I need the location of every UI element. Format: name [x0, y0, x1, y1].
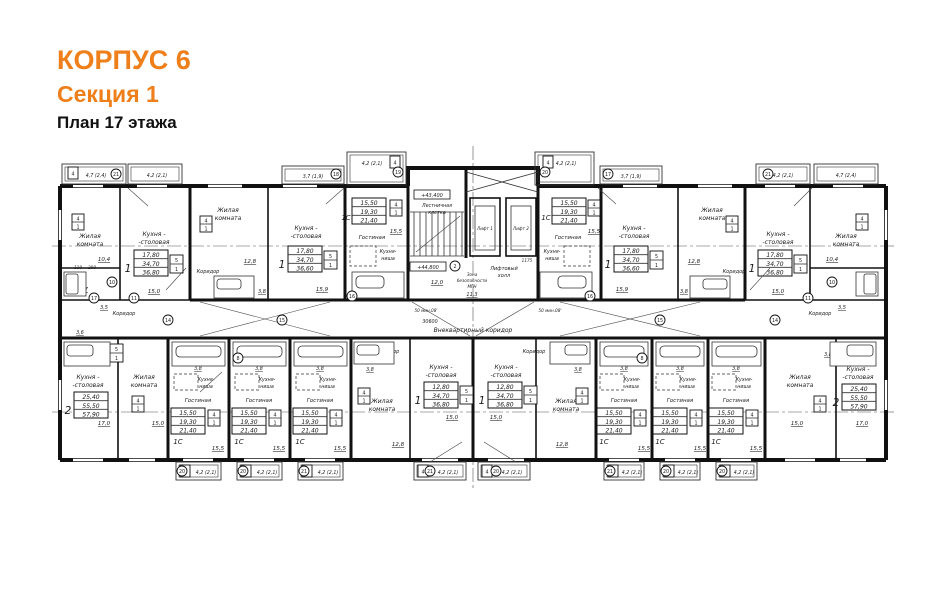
svg-text:4: 4 [750, 413, 753, 419]
room-label: Кухня - [767, 231, 790, 238]
svg-text:21: 21 [427, 469, 433, 475]
room-label: Гостиная [359, 235, 386, 241]
apt-table-value: 15,50 [560, 200, 577, 207]
svg-text:10: 10 [829, 280, 835, 286]
svg-text:4: 4 [212, 413, 215, 419]
svg-text:1: 1 [334, 421, 337, 427]
elevator-1-label: Лифт 1 [476, 226, 493, 231]
room-area: 3,8 [258, 289, 266, 295]
svg-text:4: 4 [76, 217, 79, 223]
apt-table-value: 55,50 [850, 395, 867, 402]
room-label: Кухня- [320, 377, 337, 383]
room-label: -столовая [73, 382, 104, 389]
room-area: 15,5 [638, 446, 651, 452]
svg-text:4: 4 [730, 219, 733, 225]
apt-table-value: 17,80 [622, 248, 639, 255]
svg-text:20: 20 [542, 170, 548, 176]
apt-table-value: 21,40 [661, 428, 678, 435]
room-label: Кухня- [624, 377, 641, 383]
room-area: 15,0 [791, 421, 804, 427]
svg-text:1: 1 [204, 227, 207, 233]
svg-text:1: 1 [694, 421, 697, 427]
room-area: 3,8 [194, 366, 202, 372]
dim-label: 1175 [522, 258, 533, 263]
svg-text:4: 4 [136, 399, 139, 405]
room-area: 12,8 [556, 442, 569, 448]
balcony-area-label: 4,2 (2,1) [257, 470, 278, 476]
svg-text:21: 21 [113, 172, 119, 178]
room-area: 15,0 [148, 289, 161, 295]
room-label: Жилая [834, 233, 857, 240]
svg-text:15: 15 [657, 318, 663, 324]
elevation-mark: +43,400 [421, 193, 443, 199]
room-area: 3,8 [255, 366, 263, 372]
apt-table-value: 15,50 [240, 410, 257, 417]
apartment-studio-b6: 3,8 Кухня- ниша Гостиная 15,50 19,30 21,… [709, 366, 763, 452]
svg-text:11: 11 [805, 296, 811, 302]
apt-table-value: 15,50 [661, 410, 678, 417]
room-area: 15,9 [316, 287, 329, 293]
apt-table-value: 36,60 [622, 266, 639, 273]
svg-text:4: 4 [204, 219, 207, 225]
apt-table-value: 15,50 [179, 410, 196, 417]
safety-zone-label: Зона [467, 272, 478, 277]
room-area: 3,8 [574, 367, 582, 373]
room-label: Кухня - [295, 225, 318, 232]
room-area: 10,4 [98, 257, 111, 263]
room-label: комната [131, 382, 158, 389]
svg-text:5: 5 [799, 258, 802, 264]
svg-text:1: 1 [175, 267, 178, 273]
apt-table-value: 17,80 [766, 252, 783, 259]
drawing-sheet: КОРПУС 6 Секция 1 План 17 этажа [0, 0, 941, 600]
svg-text:4: 4 [334, 413, 337, 419]
room-label: Кухня - [495, 364, 518, 371]
stairs [410, 212, 464, 256]
balcony-area-label: 4,2 (2,1) [773, 173, 794, 179]
room-label: -столовая [619, 233, 650, 240]
room-label: Коридор [197, 269, 220, 275]
room-label: комната [553, 406, 580, 413]
svg-text:11: 11 [131, 296, 137, 302]
room-label: Кухня- [544, 249, 561, 255]
balcony-area-label: 3,7 (1,9) [621, 174, 642, 180]
room-label: Жилая [132, 374, 155, 381]
svg-text:8: 8 [236, 356, 239, 362]
apartment-1room-corner-tl: Жилая комната 10,4 4 1 110 200 Кухня - -… [72, 214, 183, 317]
room-label: Жилая [554, 398, 577, 405]
svg-text:4: 4 [394, 203, 397, 209]
apartment-studio-b5: 3,8 Кухня- ниша Гостиная 15,50 19,30 21,… [653, 366, 707, 452]
apt-number: 1 [749, 263, 756, 275]
svg-text:1: 1 [799, 267, 802, 273]
stair-area: 12,0 [431, 280, 444, 286]
svg-text:8: 8 [640, 356, 643, 362]
svg-text:5: 5 [175, 258, 178, 264]
apt-number: 1 [125, 263, 132, 275]
room-label: Кухня - [847, 366, 870, 373]
room-label: ниша [737, 385, 751, 390]
apartment-studio-b3: 3,8 Кухня- ниша Гостиная 15,50 19,30 21,… [293, 366, 347, 452]
apartment-studio-b4: 3,8 Кухня- ниша Гостиная 15,50 19,30 21,… [597, 366, 651, 452]
dim-label: 110 [74, 265, 82, 270]
room-area: 15,5 [273, 446, 286, 452]
apt-table-value: 21,40 [301, 428, 318, 435]
room-label: -столовая [291, 233, 322, 240]
balcony-area-label: 4,2 (2,1) [556, 161, 577, 167]
room-label: комната [787, 382, 814, 389]
room-label: Жилая [700, 207, 723, 214]
room-label: ниша [625, 385, 639, 390]
room-area: 3,5 [100, 305, 108, 311]
room-area: 15,5 [212, 446, 225, 452]
room-label: Коридор [113, 311, 136, 317]
room-label: Кухня- [198, 377, 215, 383]
elevators [466, 172, 538, 256]
apt-table-value: 19,30 [360, 209, 377, 216]
apartment-studio-b1: 3,8 Кухня- ниша Гостиная 15,50 19,30 21,… [171, 366, 225, 452]
elevator-2-label: Лифт 2 [512, 226, 529, 231]
room-label: Гостиная [185, 398, 212, 404]
svg-text:2: 2 [453, 264, 456, 270]
svg-text:10: 10 [109, 280, 115, 286]
balcony-area-label: 4,2 (2,1) [502, 470, 523, 476]
svg-text:4: 4 [638, 413, 641, 419]
apt-table-value: 55,50 [82, 403, 99, 410]
room-area: 3,8 [732, 366, 740, 372]
svg-text:1: 1 [860, 225, 863, 231]
balcony-area-label: 4,2 (2,1) [678, 470, 699, 476]
room-label: Кухня - [623, 225, 646, 232]
apt-number: 1С [295, 438, 304, 446]
room-area: 3,8 [620, 366, 628, 372]
elevation-mark: +44,800 [417, 265, 439, 271]
apt-table-value: 12,80 [496, 384, 513, 391]
svg-text:4: 4 [273, 413, 276, 419]
apt-number: 1 [605, 259, 612, 271]
svg-text:21: 21 [607, 469, 613, 475]
svg-text:4: 4 [592, 203, 595, 209]
room-label: комната [77, 241, 104, 248]
apt-table-value: 57,90 [850, 404, 867, 411]
apt-table-value: 15,50 [717, 410, 734, 417]
room-area: 15,0 [772, 289, 785, 295]
svg-text:4: 4 [580, 391, 583, 397]
svg-text:4: 4 [393, 161, 396, 167]
svg-text:1: 1 [655, 263, 658, 269]
room-area: 15,9 [616, 287, 629, 293]
room-label: Гостиная [723, 398, 750, 404]
apt-number: 1 [279, 259, 286, 271]
svg-text:1: 1 [212, 421, 215, 427]
svg-text:4: 4 [818, 399, 821, 405]
balcony-area-label: 4,2 (2,1) [318, 470, 339, 476]
hall-area: 3,6 [76, 330, 84, 336]
dim-label: 200 [88, 265, 96, 270]
svg-text:1: 1 [638, 421, 641, 427]
svg-text:21: 21 [765, 172, 771, 178]
apt-table-value: 19,30 [560, 209, 577, 216]
room-label: Кухня- [259, 377, 276, 383]
svg-text:5: 5 [529, 389, 532, 395]
apt-table-value: 17,80 [296, 248, 313, 255]
room-label: комната [699, 215, 726, 222]
apt-table-value: 34,70 [496, 393, 513, 400]
room-area: 3,8 [676, 366, 684, 372]
apt-table-value: 57,90 [82, 412, 99, 419]
room-area: 17,0 [856, 421, 869, 427]
apt-number: 1С [711, 438, 720, 446]
room-label: -столовая [843, 374, 874, 381]
apt-table-value: 12,80 [432, 384, 449, 391]
svg-text:1: 1 [580, 399, 583, 405]
svg-text:14: 14 [165, 318, 171, 324]
room-label: Коридор [523, 349, 546, 355]
safety-zone-label: безопасности [457, 278, 488, 283]
svg-text:1: 1 [818, 407, 821, 413]
apt-table-value: 34,70 [766, 261, 783, 268]
apt-table-value: 21,40 [560, 218, 577, 225]
safety-zone-label: МГН [467, 284, 477, 289]
apt-table-value: 34,70 [622, 257, 639, 264]
apt-table-value: 36,80 [142, 270, 159, 277]
room-label: Коридор [809, 311, 832, 317]
balcony-area-label: 4,7 (2,4) [86, 173, 107, 179]
stair-core: +43,400 Лестничная клетка +44,800 12,0 Л… [410, 172, 538, 298]
apt-number: 1 [479, 395, 486, 407]
room-label: Жилая [788, 374, 811, 381]
room-label: -столовая [139, 239, 170, 246]
svg-text:20: 20 [493, 469, 499, 475]
room-area: 12,8 [392, 442, 405, 448]
floor-plan: 4,7 (2,4) 4,2 (2,1) 3,7 (1,9) 4,2 (2,1) … [0, 0, 941, 600]
apt-table-value: 15,50 [301, 410, 318, 417]
apt-table-value: 15,50 [605, 410, 622, 417]
room-area: 15,5 [750, 446, 763, 452]
apt-table-value: 21,40 [717, 428, 734, 435]
lift-hall-label: Лифтовый [489, 266, 518, 272]
svg-text:20: 20 [240, 469, 246, 475]
common-corridor-label: Внеквартирный коридор [434, 327, 513, 334]
room-label: Кухня- [736, 377, 753, 383]
room-area: 3,8 [366, 367, 374, 373]
apt-table-value: 34,70 [296, 257, 313, 264]
stair-label: Лестничная [421, 203, 452, 209]
svg-text:20: 20 [179, 469, 185, 475]
room-label: Гостиная [611, 398, 638, 404]
svg-text:4: 4 [546, 161, 549, 167]
svg-text:4: 4 [485, 470, 488, 476]
apt-table-value: 36,80 [496, 402, 513, 409]
svg-text:1: 1 [362, 399, 365, 405]
apt-number: 1С [341, 214, 350, 222]
svg-text:1: 1 [273, 421, 276, 427]
balcony-area-label: 4,2 (2,1) [362, 161, 383, 167]
svg-text:1: 1 [76, 225, 79, 231]
apt-table-value: 36,80 [766, 270, 783, 277]
apt-number: 1С [599, 438, 608, 446]
room-label: ниша [321, 385, 335, 390]
apt-table-value: 19,30 [661, 419, 678, 426]
svg-text:5: 5 [329, 254, 332, 260]
room-label: ниша [260, 385, 274, 390]
svg-text:1: 1 [136, 407, 139, 413]
svg-text:14: 14 [772, 318, 778, 324]
apt-table-value: 34,70 [432, 393, 449, 400]
apt-number: 1 [415, 395, 422, 407]
svg-text:4: 4 [362, 391, 365, 397]
svg-text:1: 1 [115, 356, 118, 362]
apt-table-value: 19,30 [605, 419, 622, 426]
svg-text:4: 4 [421, 470, 424, 476]
apt-table-value: 34,70 [142, 261, 159, 268]
room-area: 15,0 [446, 415, 459, 421]
apt-number: 1С [234, 438, 243, 446]
stair-label: клетка [428, 211, 446, 216]
balcony-area-label: 4,2 (2,1) [438, 470, 459, 476]
svg-text:4: 4 [860, 217, 863, 223]
apt-number: 1С [173, 438, 182, 446]
apt-number: 1С [655, 438, 664, 446]
room-area: 15,0 [152, 421, 165, 427]
svg-text:1: 1 [592, 211, 595, 217]
svg-text:5: 5 [465, 389, 468, 395]
svg-text:20: 20 [719, 469, 725, 475]
apt-table-value: 25,40 [850, 386, 867, 393]
apt-table-value: 21,40 [605, 428, 622, 435]
svg-text:16: 16 [349, 294, 355, 300]
room-label: Жилая [78, 233, 101, 240]
room-area: 3,8 [316, 366, 324, 372]
svg-text:1: 1 [394, 211, 397, 217]
room-area: 10,4 [826, 257, 839, 263]
room-label: Кухня- [680, 377, 697, 383]
room-label: Жилая [370, 398, 393, 405]
room-label: Гостиная [307, 398, 334, 404]
room-label: -столовая [763, 239, 794, 246]
room-label: Коридор [723, 269, 746, 275]
balcony-area-label: 4,2 (2,1) [622, 470, 643, 476]
balcony-area-label: 4,2 (2,1) [147, 173, 168, 179]
svg-text:18: 18 [333, 172, 339, 178]
apt-table-value: 21,40 [240, 428, 257, 435]
apt-number: 2 [833, 397, 840, 409]
svg-text:17: 17 [91, 296, 97, 302]
room-label: комната [215, 215, 242, 222]
apt-table-value: 36,60 [296, 266, 313, 273]
room-area: 15,5 [390, 229, 403, 235]
apt-table-value: 19,30 [179, 419, 196, 426]
svg-text:1: 1 [529, 398, 532, 404]
room-area: 15,5 [694, 446, 707, 452]
room-label: Кухня - [77, 374, 100, 381]
apt-table-value: 19,30 [717, 419, 734, 426]
balcony-area-label: 3,7 (1,9) [303, 174, 324, 180]
apartment-studio-b2: 3,8 Кухня- ниша Гостиная 15,50 19,30 21,… [232, 366, 286, 452]
room-label: ниша [199, 385, 213, 390]
room-label: Гостиная [246, 398, 273, 404]
room-label: ниша [545, 257, 559, 262]
svg-text:19: 19 [395, 170, 401, 176]
apt-table-value: 36,80 [432, 402, 449, 409]
lift-hall-label: холл [497, 273, 511, 279]
room-label: комната [369, 406, 396, 413]
svg-text:4: 4 [71, 172, 74, 178]
room-label: Кухня - [430, 364, 453, 371]
svg-text:5: 5 [115, 347, 118, 353]
apt-table-value: 19,30 [240, 419, 257, 426]
balcony-area-label: 4,7 (2,4) [836, 173, 857, 179]
room-label: -столовая [491, 372, 522, 379]
svg-text:1: 1 [750, 421, 753, 427]
room-area: 15,0 [490, 415, 503, 421]
svg-text:20: 20 [663, 469, 669, 475]
apt-table-value: 19,30 [301, 419, 318, 426]
room-label: Жилая [216, 207, 239, 214]
svg-text:1: 1 [329, 263, 332, 269]
room-label: Гостиная [667, 398, 694, 404]
room-label: Кухня - [143, 231, 166, 238]
room-area: 17,0 [98, 421, 111, 427]
apt-table-value: 25,40 [82, 394, 99, 401]
room-label: Гостиная [555, 235, 582, 241]
apt-table-value: 17,80 [142, 252, 159, 259]
svg-text:4: 4 [694, 413, 697, 419]
room-label: комната [833, 241, 860, 248]
lift-hall-area: 11,3 [466, 292, 477, 298]
room-label: ниша [681, 385, 695, 390]
room-label: -столовая [426, 372, 457, 379]
apt-table-value: 21,40 [360, 218, 377, 225]
svg-text:5: 5 [655, 254, 658, 260]
room-area: 12,8 [688, 259, 701, 265]
apt-table-value: 15,50 [360, 200, 377, 207]
svg-text:16: 16 [587, 294, 593, 300]
dim-total: 30600 [422, 319, 437, 325]
apt-number: 1С [541, 214, 550, 222]
svg-text:17: 17 [605, 172, 611, 178]
room-label: Кухня- [380, 249, 397, 255]
room-area: 15,5 [588, 229, 601, 235]
fire-door-note: 50 мин.08' [538, 308, 561, 313]
room-area: 3,5 [838, 305, 846, 311]
svg-text:1: 1 [465, 398, 468, 404]
balcony-area-label: 4,2 (2,1) [734, 470, 755, 476]
room-area: 15,5 [334, 446, 347, 452]
room-area: 3,8 [680, 289, 688, 295]
svg-text:1: 1 [730, 227, 733, 233]
svg-text:21: 21 [301, 469, 307, 475]
room-area: 12,8 [244, 259, 257, 265]
room-label: ниша [381, 257, 395, 262]
apt-number: 2 [65, 405, 72, 417]
balcony-area-label: 4,2 (2,1) [196, 470, 217, 476]
svg-text:15: 15 [279, 318, 285, 324]
apt-table-value: 21,40 [179, 428, 196, 435]
